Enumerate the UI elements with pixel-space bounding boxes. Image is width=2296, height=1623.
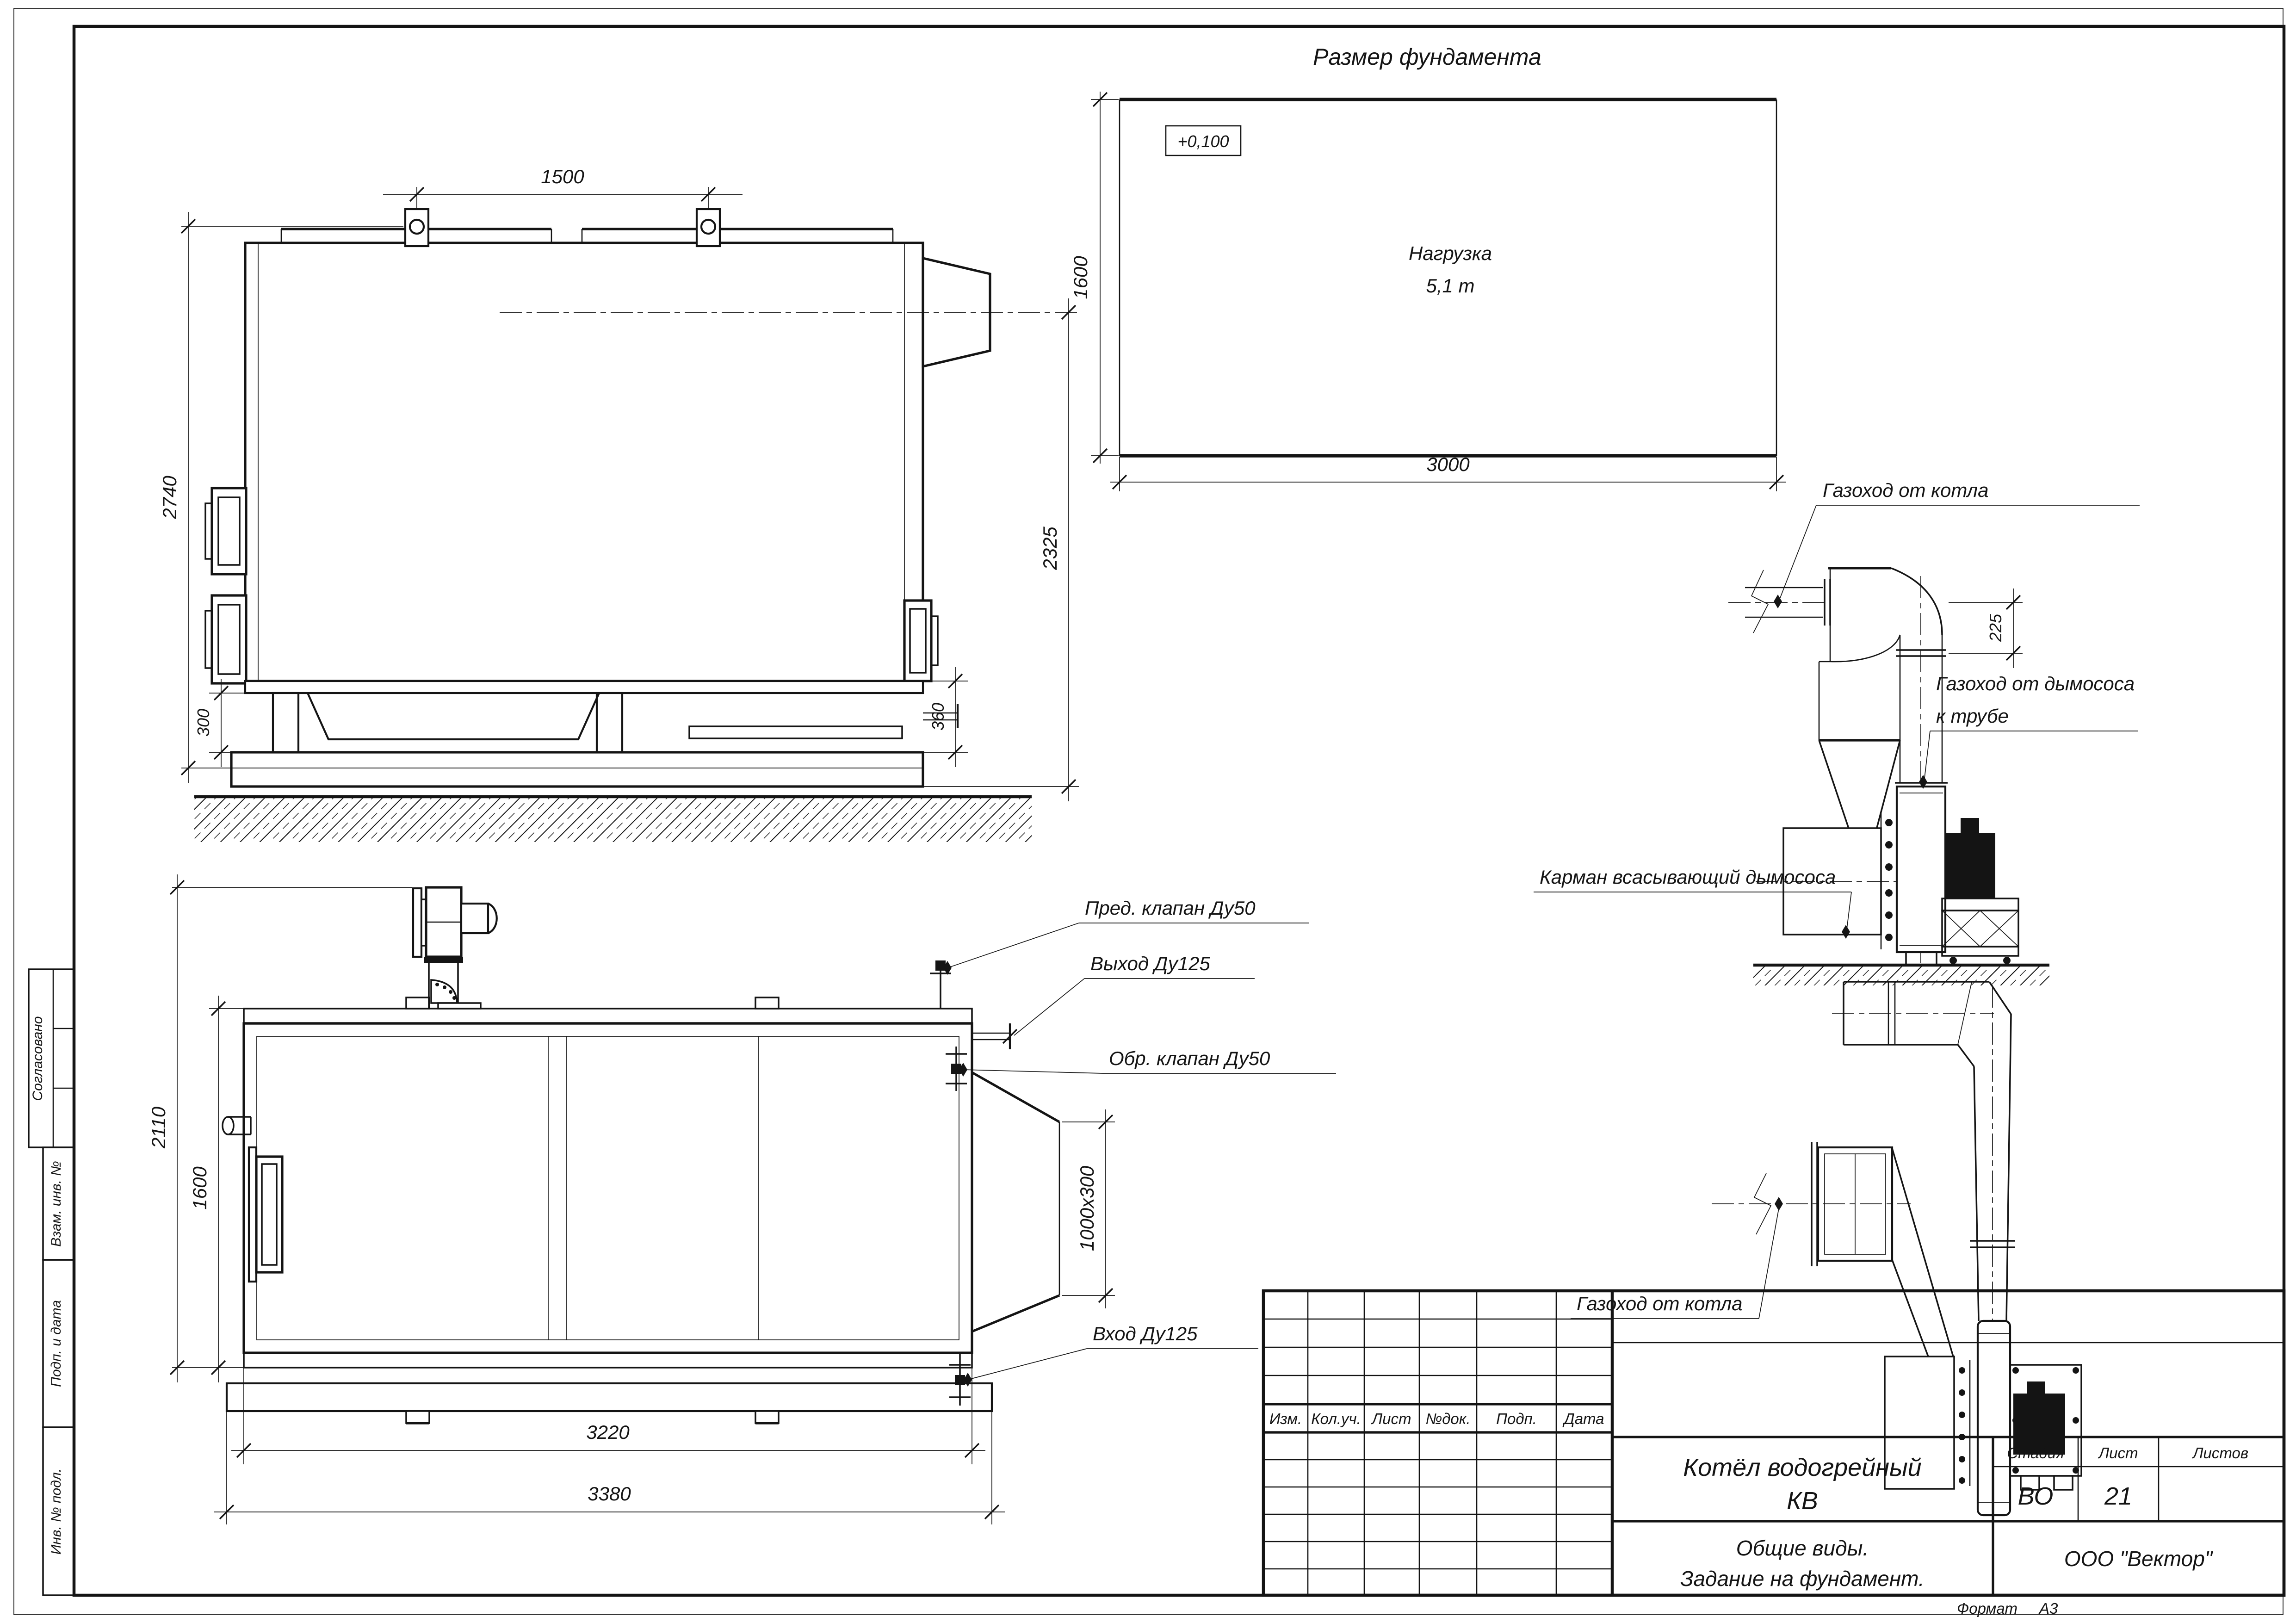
format-value: А3: [2038, 1600, 2058, 1617]
rev-header-data: Дата: [1562, 1410, 1604, 1427]
dim-plan-body-width: 1600: [189, 1166, 210, 1210]
foundation-plan: Размер фундамента +0,100 Нагрузка 5,1 т …: [1070, 44, 1786, 491]
label-check-valve: Обр. клапан Ду50: [1109, 1047, 1270, 1069]
doc-title-line2: Задание на фундамент.: [1680, 1567, 1925, 1591]
foundation-load-1: Нагрузка: [1409, 242, 1492, 264]
engineering-drawing: Согласовано Взам. инв. № Подп. и дата Ин…: [0, 0, 2296, 1623]
foundation-load-2: 5,1 т: [1426, 275, 1474, 297]
rev-header-ndok: №док.: [1425, 1410, 1470, 1427]
flue-duct-plan-view: Газоход от котла: [1571, 982, 2081, 1515]
margin-label-sign-date: Подп. и дата: [49, 1300, 64, 1387]
elbow-plan: [1832, 982, 2011, 1066]
dim-overall-height: 2740: [159, 476, 180, 520]
front-door-plan: [249, 1147, 282, 1282]
dim-lug-spacing: 1500: [541, 166, 584, 187]
front-door-upper: [205, 488, 246, 574]
product-title-line1: Котёл водогрейный: [1683, 1454, 1921, 1481]
product-title-line2: КВ: [1787, 1487, 1818, 1515]
drawing-sheet: Согласовано Взам. инв. № Подп. и дата Ин…: [0, 0, 2296, 1623]
label-outlet: Выход Ду125: [1090, 953, 1210, 974]
margin-label-approved: Согласовано: [30, 1016, 45, 1101]
boiler-side-view: 1500 2740 300 360 2325: [159, 166, 1079, 842]
support-frame: [231, 681, 923, 787]
dim-overall-length: 3380: [588, 1483, 631, 1505]
label-safety-valve: Пред. клапан Ду50: [1085, 897, 1256, 919]
sheets-label: Листов: [2192, 1444, 2248, 1462]
outlet-stub: [972, 1023, 1017, 1049]
ground: [194, 797, 1032, 842]
company-name: ООО "Вектор": [2064, 1547, 2214, 1571]
foundation-dim-height: 1600: [1070, 256, 1091, 299]
flue-duct-side-view: Газоход от котла: [1534, 479, 2140, 985]
foundation-title: Размер фундамента: [1313, 44, 1541, 70]
label-inlet: Вход Ду125: [1093, 1323, 1198, 1344]
margin-label-replace-inv: Взам. инв. №: [49, 1161, 64, 1247]
inlet-box-plan: [1712, 1142, 1911, 1266]
dim-plan-overall-width: 2110: [148, 1106, 169, 1149]
dim-flue-height: 2325: [1039, 527, 1061, 570]
exhauster-plan-on-boiler: [413, 887, 497, 1009]
dim-rear-height: 360: [928, 703, 947, 731]
rev-header-podp: Подп.: [1496, 1410, 1537, 1427]
corner-fitting: [223, 1117, 251, 1134]
dim-support-height: 300: [194, 709, 213, 737]
format-label: Формат: [1957, 1600, 2018, 1617]
margin-label-inv-orig: Инв. № подл.: [49, 1468, 64, 1555]
foundation-dim-width: 3000: [1426, 453, 1470, 475]
lifting-lugs: [405, 209, 720, 246]
stage-label: Стадия: [2007, 1444, 2064, 1462]
rev-header-koluch: Кол.уч.: [1311, 1410, 1361, 1427]
rear-hatch: [904, 601, 938, 681]
label-suction-pocket: Карман всасывающий дымососа: [1540, 866, 1836, 888]
elevation-mark: +0,100: [1177, 132, 1229, 151]
label-flue-to-stack-1: Газоход от дымососа: [1936, 673, 2135, 694]
rev-header-list: Лист: [1371, 1410, 1411, 1427]
label-flue-to-stack-2: к трубе: [1936, 705, 2009, 727]
stage-value: ВО: [2018, 1482, 2054, 1510]
dim-duct-offset: 225: [1986, 613, 2005, 642]
title-block: Изм. Кол.уч. Лист №док. Подп. Дата Котёл…: [1263, 1291, 2284, 1617]
dim-duct-size: 1000x300: [1076, 1165, 1098, 1251]
boiler-plan-view: 1000x300 2110 1600 3220 3380 Пред. клапа…: [148, 874, 1336, 1524]
margin-boxes: Согласовано Взам. инв. № Подп. и дата Ин…: [29, 969, 74, 1595]
doc-title-line1: Общие виды.: [1736, 1536, 1869, 1560]
sheet-label: Лист: [2098, 1444, 2138, 1462]
front-door-lower: [205, 595, 246, 683]
label-flue-from-boiler-side: Газоход от котла: [1823, 479, 1988, 501]
rev-header-izm: Изм.: [1269, 1410, 1302, 1427]
rear-duct-plan: [972, 1072, 1059, 1332]
dim-body-length: 3220: [586, 1421, 630, 1443]
label-flue-from-boiler-plan: Газоход от котла: [1577, 1293, 1742, 1314]
sheet-value: 21: [2104, 1482, 2132, 1510]
